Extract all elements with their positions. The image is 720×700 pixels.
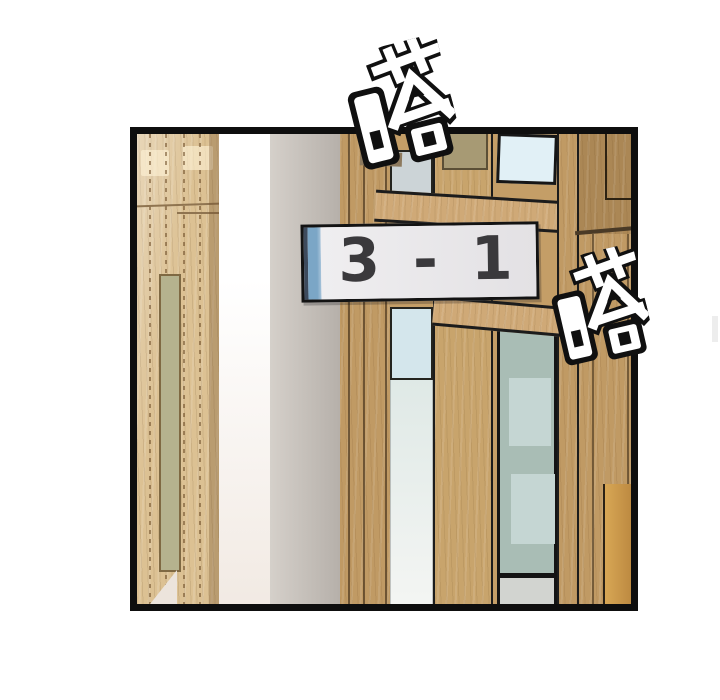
- sign-accent-stripe: [308, 227, 322, 299]
- door-edge-shadow: [209, 134, 219, 611]
- door-grain-line: [199, 134, 201, 611]
- frame-line: [605, 134, 607, 200]
- glass-pane-pale: [390, 380, 433, 611]
- sign-plate: 3 - 1: [321, 224, 537, 299]
- comic-page: 3 - 1 嗒 嗒: [0, 0, 720, 700]
- gray-wall-strip: [270, 134, 340, 611]
- glass-pane-bright: [496, 133, 558, 185]
- door-inset-panel: [159, 274, 181, 572]
- plank-seam: [348, 134, 350, 611]
- room-number-text: 3 - 1: [338, 229, 519, 292]
- glass-pane-blue: [390, 307, 433, 380]
- plank-seam: [363, 134, 365, 611]
- frame-line: [605, 198, 638, 200]
- orange-wood-strip: [603, 484, 633, 611]
- right-door-top-corner: [579, 134, 638, 234]
- page-edge-artifact: [712, 316, 718, 342]
- glass-reflection-square: [511, 474, 555, 544]
- glass-reflection-square: [509, 378, 551, 446]
- room-number-sign: 3 - 1: [300, 221, 539, 302]
- frame-line: [635, 134, 637, 198]
- glass-bottom-sill: [497, 576, 557, 611]
- bright-gap-strip: [219, 134, 270, 611]
